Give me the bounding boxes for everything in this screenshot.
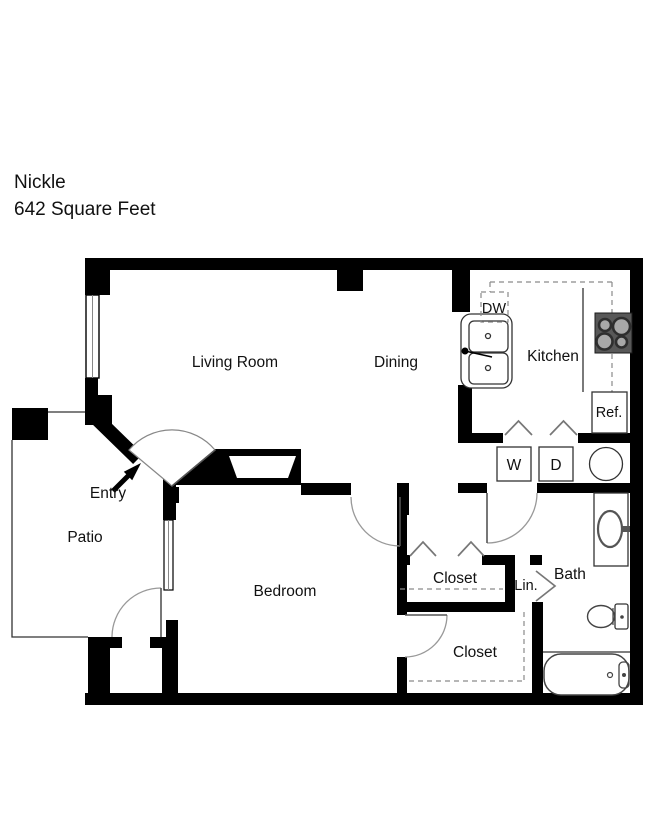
storage-left-pier xyxy=(88,637,110,697)
laundry-bottom-wall-left xyxy=(458,483,487,493)
hall-closet-bifold-left xyxy=(410,542,436,556)
bedroom-west-pier xyxy=(166,620,178,637)
entry-hinge-jamb xyxy=(165,487,179,503)
hall-closet-north-wall-a xyxy=(398,555,410,565)
label-bedroom: Bedroom xyxy=(254,583,317,600)
floor-plan-drawing: Living Room Dining Kitchen Bedroom Patio… xyxy=(0,0,650,828)
label-patio: Patio xyxy=(67,529,102,546)
bedroom-door-arc xyxy=(351,497,400,546)
bath-fixtures xyxy=(543,493,630,695)
storage-door-jamb-left xyxy=(110,637,122,648)
label-bedroom-closet: Closet xyxy=(453,644,498,661)
burner-bottom-left xyxy=(597,334,613,350)
bathtub xyxy=(544,654,629,695)
label-hall-closet: Closet xyxy=(433,570,478,587)
bath-west-wall xyxy=(532,602,543,697)
label-linen-closet: Lin. xyxy=(514,578,537,594)
linen-door-chevron xyxy=(536,571,555,601)
laundry-top-wall-right xyxy=(578,433,630,443)
burner-top-left xyxy=(599,319,611,331)
label-dryer: D xyxy=(550,457,561,474)
storage-door-jamb-right xyxy=(150,637,162,648)
vanity-faucet xyxy=(621,526,630,532)
label-kitchen: Kitchen xyxy=(527,348,579,365)
wall-top xyxy=(85,258,643,270)
hall-closet-south-wall xyxy=(397,602,515,612)
burner-top-right xyxy=(613,318,630,335)
patio-outline-group xyxy=(12,412,88,637)
label-washer: W xyxy=(507,457,522,474)
wall-living-bedroom xyxy=(301,483,351,495)
water-heater xyxy=(590,448,623,481)
patio-pillar xyxy=(12,408,48,440)
label-living-room: Living Room xyxy=(192,354,278,371)
toilet-flush-button xyxy=(620,615,624,619)
pillar-living-dining xyxy=(337,270,363,291)
label-refrigerator: Ref. xyxy=(596,405,623,421)
laundry-bifold-left xyxy=(505,421,532,435)
label-bath: Bath xyxy=(554,566,586,583)
label-entry: Entry xyxy=(90,485,126,502)
laundry-top-wall-left xyxy=(465,433,503,443)
bedroom-closet-door-arc xyxy=(405,615,447,657)
label-dining: Dining xyxy=(374,354,418,371)
wall-left-upper xyxy=(85,258,110,295)
floor-plan-page: Nickle 642 Square Feet xyxy=(0,0,650,828)
bedroom-east-wall-lower xyxy=(397,657,407,697)
pillar-kitchen xyxy=(452,270,470,312)
toilet-bowl xyxy=(588,606,615,628)
fireplace-niche xyxy=(229,456,296,478)
patio-storage-door-arc xyxy=(112,588,161,637)
hall-closet-bifold-right xyxy=(458,542,484,556)
laundry-bottom-wall-right xyxy=(537,483,630,493)
burner-bottom-right xyxy=(616,337,627,348)
bedroom-door-pier xyxy=(397,483,409,515)
laundry-bifold-right xyxy=(550,421,577,435)
label-dishwasher: DW xyxy=(482,301,506,317)
vanity-sink xyxy=(598,511,622,547)
hall-door-arc xyxy=(487,493,537,543)
storage-right-pier xyxy=(162,637,178,697)
tub-faucet-knob xyxy=(622,673,626,677)
linen-east-pier xyxy=(530,555,542,565)
